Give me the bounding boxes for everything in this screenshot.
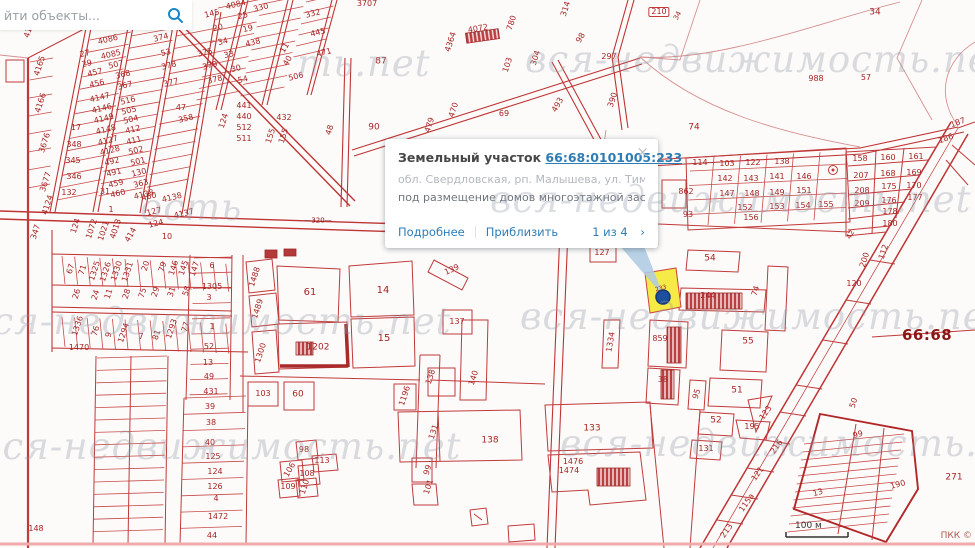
links-divider bbox=[475, 226, 476, 238]
parcel-address: обл. Свердловская, рп. Малышева, ул. Тим… bbox=[398, 173, 645, 186]
pager: 1 из 4 › bbox=[592, 225, 645, 239]
popup-leader-pointer bbox=[620, 241, 664, 297]
next-parcel-icon[interactable]: › bbox=[640, 225, 645, 239]
popup-footer: Подробнее Приблизить 1 из 4 › bbox=[398, 225, 645, 239]
parcel-usage: под размещение домов многоэтажной застро… bbox=[398, 191, 645, 204]
parcel-outlines bbox=[0, 28, 975, 548]
buildings bbox=[265, 29, 742, 486]
details-link[interactable]: Подробнее bbox=[398, 225, 465, 239]
pkk-copyright: ПКК © bbox=[941, 531, 972, 541]
zoom-to-link[interactable]: Приблизить bbox=[486, 225, 558, 239]
quarter-label: 66:68 bbox=[902, 326, 952, 344]
cadastral-map-app: 4123416541663676367741243472729457456414… bbox=[0, 0, 975, 548]
cadastral-map-canvas[interactable] bbox=[0, 0, 975, 548]
parcel-info-popup: Земельный участок 66:68:0101005:233 × об… bbox=[385, 139, 658, 248]
scale-label: 100 м bbox=[795, 521, 822, 531]
parcel-id-link[interactable]: 66:68:0101005:233 bbox=[545, 150, 682, 165]
popup-title-label: Земельный участок bbox=[398, 150, 541, 165]
pager-label: 1 из 4 bbox=[592, 225, 628, 239]
popup-title: Земельный участок 66:68:0101005:233 × bbox=[398, 150, 645, 165]
close-icon[interactable]: × bbox=[636, 145, 649, 160]
search-input[interactable] bbox=[0, 8, 167, 23]
parcel-marker[interactable] bbox=[656, 290, 670, 304]
search-bar bbox=[0, 0, 192, 30]
search-icon[interactable] bbox=[167, 7, 184, 24]
